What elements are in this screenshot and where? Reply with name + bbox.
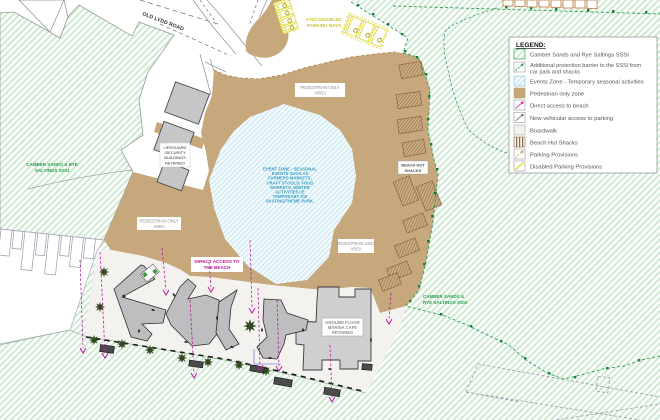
svg-text:PEDESTRIAN ONLY: PEDESTRIAN ONLY [336, 241, 375, 246]
svg-text:LEGEND:: LEGEND: [516, 42, 546, 49]
svg-text:AREA: AREA [153, 224, 165, 229]
svg-text:SKATING/THEME PARK.: SKATING/THEME PARK. [266, 199, 314, 204]
svg-text:Boardwalk: Boardwalk [530, 129, 557, 135]
svg-text:CAMBER SANDS & RYE: CAMBER SANDS & RYE [26, 162, 78, 167]
svg-text:Direct access to beach: Direct access to beach [530, 104, 589, 110]
svg-text:AREA: AREA [350, 247, 362, 252]
svg-text:SHACKS: SHACKS [405, 168, 422, 173]
svg-text:New vehicular access to parkin: New vehicular access to parking [530, 116, 613, 122]
svg-text:PARKING BAYS: PARKING BAYS [307, 23, 341, 28]
svg-text:AREA: AREA [314, 91, 326, 96]
svg-text:SALTINGS SSSI: SALTINGS SSSI [35, 168, 69, 173]
svg-text:9 NO DISABLED: 9 NO DISABLED [306, 17, 342, 22]
svg-text:RETAINED: RETAINED [332, 330, 353, 335]
svg-text:CAMBER SANDS &: CAMBER SANDS & [423, 294, 465, 299]
svg-text:Additional protection barrier: Additional protection barrier to the SSS… [530, 63, 641, 69]
svg-text:PEDESTRIAN ONLY: PEDESTRIAN ONLY [139, 219, 178, 224]
svg-text:car park and shacks: car park and shacks [530, 70, 580, 76]
svg-text:RYE SALTINGS SSSI: RYE SALTINGS SSSI [423, 300, 467, 305]
svg-text:Disabled Parking Provisions: Disabled Parking Provisions [530, 165, 602, 171]
svg-text:Parking Provisions: Parking Provisions [530, 153, 578, 159]
svg-text:PEDESTRIAN ONLY: PEDESTRIAN ONLY [300, 85, 339, 90]
svg-text:Camber Sands and Rye Saltings: Camber Sands and Rye Saltings SSSI [530, 53, 629, 59]
svg-text:Pedestrian only zone: Pedestrian only zone [530, 92, 584, 98]
svg-text:DIRECT ACCESS TO: DIRECT ACCESS TO [195, 259, 240, 264]
svg-text:RETAINED: RETAINED [165, 160, 185, 165]
svg-text:BEACH HUT: BEACH HUT [401, 163, 425, 168]
svg-text:Events Zone - Temporary season: Events Zone - Temporary seasonal activit… [530, 80, 644, 86]
svg-text:Beach Hut Shacks: Beach Hut Shacks [530, 141, 578, 147]
svg-text:THE BEACH: THE BEACH [204, 265, 231, 270]
